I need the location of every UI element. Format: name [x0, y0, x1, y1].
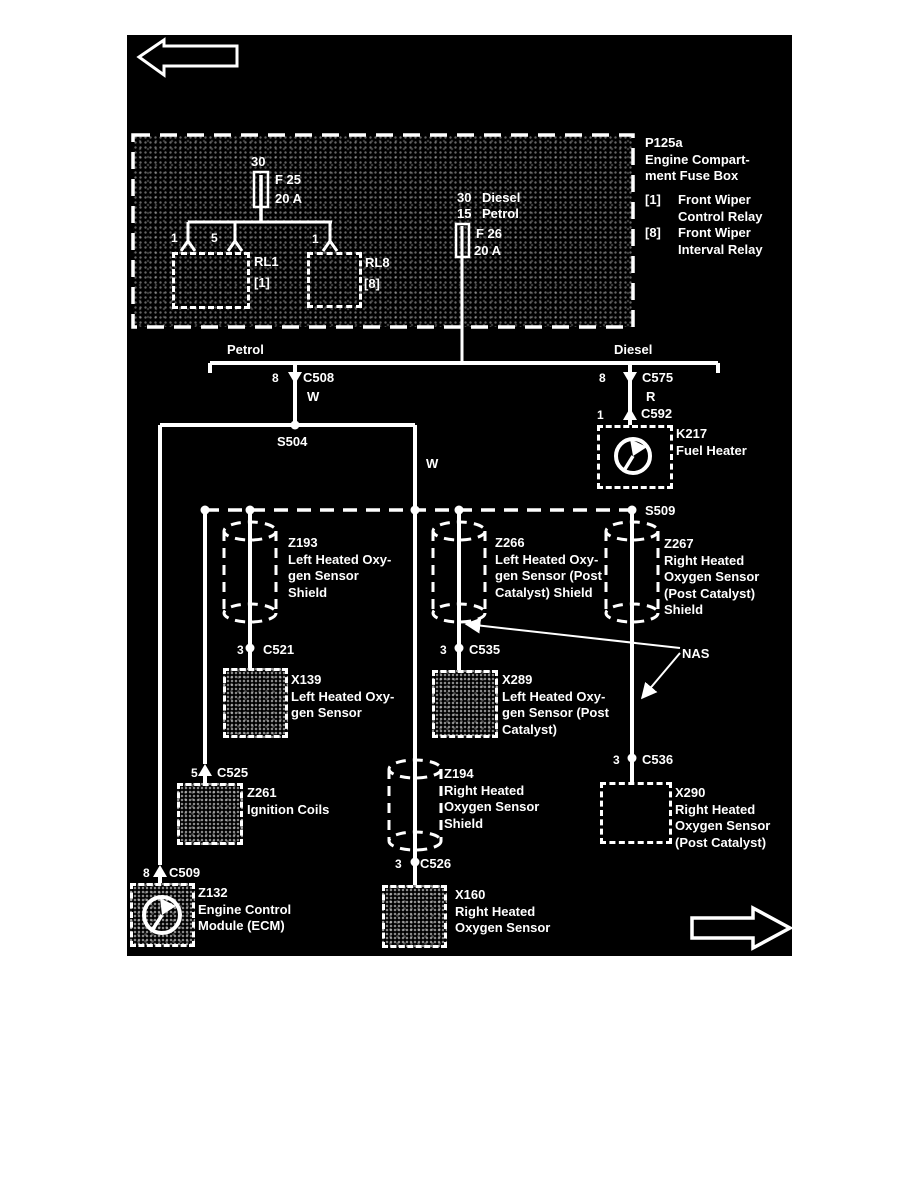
nas-pointer-line — [642, 653, 680, 698]
w-wire-label: W — [426, 456, 438, 473]
branch-petrol-label: Petrol — [227, 342, 264, 359]
fusebox-legend: P125a Engine Compart- ment Fuse Box — [645, 135, 750, 185]
pin-chevron-icon — [323, 241, 337, 251]
connector-c509-icon — [153, 865, 167, 877]
z266-label: Z266 Left Heated Oxy- gen Sensor (Post C… — [495, 535, 602, 601]
c535-pin: 3 — [440, 643, 447, 657]
c521-name: C521 — [263, 642, 294, 659]
z261-label: Z261 Ignition Coils — [247, 785, 329, 818]
fuel-heater-symbol — [616, 439, 650, 473]
wiring-diagram-canvas: 30 F 25 20 A 1 5 RL1 [1] 1 RL8 [8] 30 Di… — [127, 35, 792, 956]
rl8-ref: [8] — [364, 276, 380, 293]
fuse25-name: F 25 — [275, 172, 301, 189]
z267-label: Z267 Right Heated Oxygen Sensor (Post Ca… — [664, 536, 759, 619]
connector-c536-icon — [628, 754, 637, 763]
legend-item-1: Front Wiper Control Relay — [678, 192, 763, 225]
legend-ref-8: [8] — [645, 225, 661, 242]
rl8-pin-1: 1 — [312, 232, 319, 246]
s509-label: S509 — [645, 503, 675, 520]
c525-name: C525 — [217, 765, 248, 782]
z194-label: Z194 Right Heated Oxygen Sensor Shield — [444, 766, 539, 832]
manual-page: 30 F 25 20 A 1 5 RL1 [1] 1 RL8 [8] 30 Di… — [0, 0, 918, 1188]
c526-name: C526 — [420, 856, 451, 873]
x139-label: X139 Left Heated Oxy- gen Sensor — [291, 672, 394, 722]
connector-c508-icon — [288, 372, 302, 384]
connector-c526-icon — [411, 858, 420, 867]
fusebox-outline — [133, 135, 633, 327]
nav-arrow-right-icon[interactable] — [692, 908, 790, 948]
legend-ref-1: [1] — [645, 192, 661, 209]
pin-chevron-icon — [181, 241, 195, 251]
connector-c592-icon — [623, 408, 637, 420]
c575-name: C575 — [642, 370, 673, 387]
connector-c525-icon — [198, 764, 212, 776]
legend-item-8: Front Wiper Interval Relay — [678, 225, 763, 258]
rl8-name: RL8 — [365, 255, 390, 272]
ecm-symbol — [144, 897, 180, 933]
fuse26-term1-num: 30 — [457, 190, 471, 207]
fuse25-terminal: 30 — [251, 154, 265, 171]
c592-pin: 1 — [597, 408, 604, 422]
c508-pin: 8 — [272, 371, 279, 385]
connector-c535-icon — [455, 644, 464, 653]
fuse26-rating: 20 A — [474, 243, 501, 260]
splice-dot — [411, 506, 420, 515]
fuse26-term1-label: Diesel — [482, 190, 520, 207]
c526-pin: 3 — [395, 857, 402, 871]
pin-chevron-icon — [228, 241, 242, 251]
rl1-pin-5: 5 — [211, 231, 218, 245]
x160-label: X160 Right Heated Oxygen Sensor — [455, 887, 550, 937]
x290-label: X290 Right Heated Oxygen Sensor (Post Ca… — [675, 785, 770, 851]
c536-name: C536 — [642, 752, 673, 769]
k217-label: K217 Fuel Heater — [676, 426, 747, 459]
nav-arrow-left-icon[interactable] — [139, 40, 237, 75]
c509-name: C509 — [169, 865, 200, 882]
branch-diesel-label: Diesel — [614, 342, 652, 359]
fusebox-id: P125a — [645, 135, 750, 152]
c575-wire-color: R — [646, 389, 655, 406]
c535-name: C535 — [469, 642, 500, 659]
fuse26-term2-label: Petrol — [482, 206, 519, 223]
c509-pin: 8 — [143, 866, 150, 880]
fuse26-name: F 26 — [476, 226, 502, 243]
c508-name: C508 — [303, 370, 334, 387]
s504-label: S504 — [277, 434, 307, 451]
nas-label: NAS — [682, 646, 709, 663]
c521-pin: 3 — [237, 643, 244, 657]
z193-label: Z193 Left Heated Oxy- gen Sensor Shield — [288, 535, 391, 601]
z132-label: Z132 Engine Control Module (ECM) — [198, 885, 291, 935]
c508-wire-color: W — [307, 389, 319, 406]
rl1-name: RL1 — [254, 254, 279, 271]
c575-pin: 8 — [599, 371, 606, 385]
fuse25-rating: 20 A — [275, 191, 302, 208]
connector-c575-icon — [623, 372, 637, 384]
c525-pin: 5 — [191, 766, 198, 780]
connector-c521-icon — [246, 644, 255, 653]
fuse26-term2-num: 15 — [457, 206, 471, 223]
rl1-ref: [1] — [254, 275, 270, 292]
x289-label: X289 Left Heated Oxy- gen Sensor (Post C… — [502, 672, 609, 738]
rl1-pin-1: 1 — [171, 231, 178, 245]
splice-dot — [291, 421, 300, 430]
c536-pin: 3 — [613, 753, 620, 767]
c592-name: C592 — [641, 406, 672, 423]
